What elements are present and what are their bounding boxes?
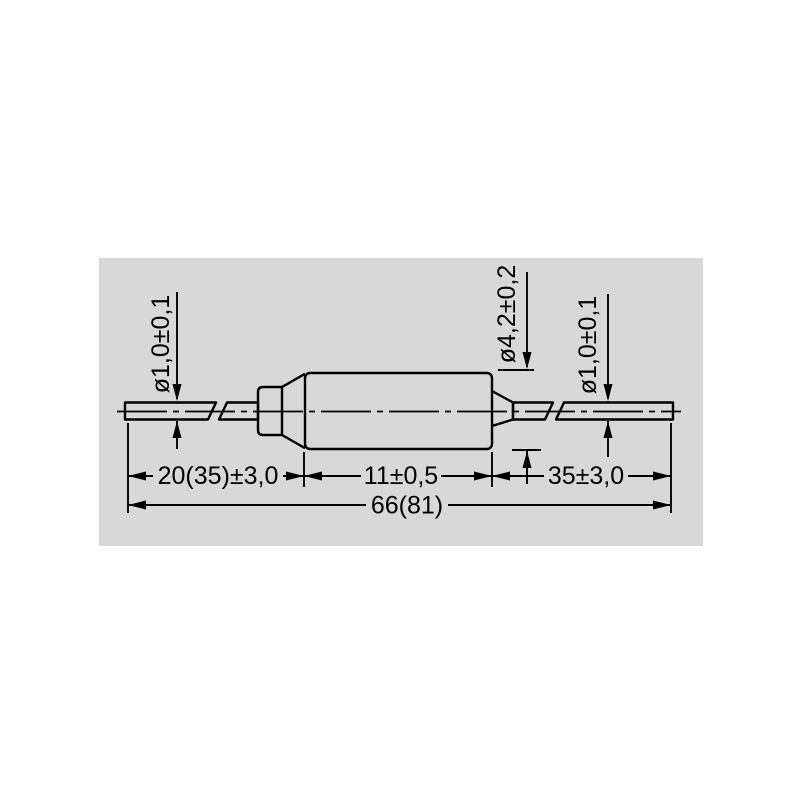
dim-label-left-lead-diameter: ø1,0±0,1 [147, 295, 175, 394]
dim-label-body-diameter: ø4,2±0,2 [493, 265, 521, 364]
technical-drawing: ø1,0±0,1 ø4,2±0,2 ø1,0±0,1 20(35)±3,0 [0, 0, 800, 800]
dim-label-left-lead-length: 20(35)±3,0 [158, 462, 279, 490]
dim-label-right-lead-length: 35±3,0 [548, 462, 624, 490]
page: ø1,0±0,1 ø4,2±0,2 ø1,0±0,1 20(35)±3,0 [0, 0, 800, 800]
dim-label-body-length: 11±0,5 [364, 462, 438, 490]
dim-label-right-lead-diameter: ø1,0±0,1 [574, 296, 602, 395]
dim-label-overall-length: 66(81) [371, 492, 443, 520]
